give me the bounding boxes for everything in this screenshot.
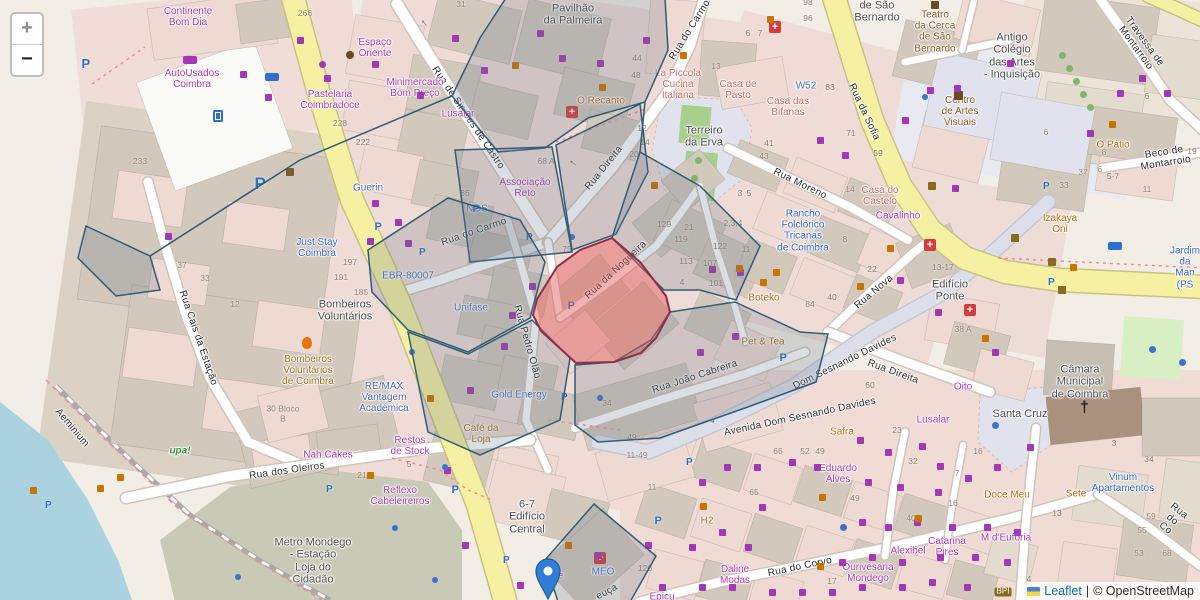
poi-label: H2 [701, 515, 714, 526]
shop-icon [897, 484, 904, 491]
poi-label: Continente Bom Dia [164, 6, 212, 28]
shop-icon [899, 559, 906, 566]
fountain-icon [1149, 346, 1156, 353]
parking-icon: P [526, 232, 533, 243]
parking-icon: P [686, 457, 693, 468]
wheelchair-icon [319, 61, 326, 68]
poi-label: Epicu [649, 591, 674, 600]
place-label: Antigo Colégio das Artes - Inquisição [984, 31, 1040, 80]
shop-icon [859, 584, 866, 591]
house-number: 119 [674, 235, 688, 245]
shop-icon [372, 200, 379, 207]
street-label: Rua do Carmo [667, 0, 713, 62]
house-number: 65 [749, 488, 758, 498]
street-label: Rua do Co [1151, 498, 1194, 542]
house-number: 31 [456, 0, 465, 10]
info-icon [597, 395, 603, 401]
poi-label: Catarina Pires [928, 536, 966, 558]
bank-icon [1011, 234, 1019, 242]
street-label: euça [594, 582, 619, 600]
poi-label: Sete [1066, 488, 1087, 499]
car-dealer-icon [183, 56, 197, 64]
parking-icon: P [473, 203, 480, 215]
shop-icon [697, 349, 704, 356]
tree-icon [1087, 104, 1094, 111]
shop-icon [417, 92, 424, 99]
house-number: 33 [200, 274, 209, 284]
house-number: 129 [657, 220, 671, 230]
parking-icon: P [45, 500, 52, 511]
house-number: 16 [948, 499, 957, 509]
house-number: 37 [177, 261, 186, 271]
street-label: Rua João Cabreira [651, 358, 739, 396]
poi-label: W52 [796, 80, 817, 91]
fuel-station-icon [213, 110, 223, 122]
food-drink-icon [857, 283, 864, 290]
house-number: 13 [711, 62, 720, 72]
shop-icon [1007, 60, 1014, 67]
shop-icon [265, 94, 272, 101]
house-number: 191 [334, 273, 348, 283]
poi-label: Lusalar [442, 108, 475, 119]
shop-icon [597, 60, 604, 67]
shop-icon [467, 387, 474, 394]
shop-icon [927, 87, 934, 94]
street-label: Rua dos Oleiros [248, 460, 325, 482]
food-drink-icon [599, 84, 606, 91]
shop-icon [1027, 444, 1034, 451]
shop-icon [994, 464, 1001, 471]
artwork-icon [346, 51, 354, 59]
house-number: 48 [631, 71, 640, 81]
shop-icon [595, 552, 602, 559]
food-drink-icon [565, 542, 572, 549]
food-drink-icon [887, 245, 894, 252]
scales-icon [286, 168, 294, 176]
zoom-out-button[interactable]: − [12, 45, 42, 75]
house-number: 38 A [954, 325, 971, 335]
tree-icon [1066, 65, 1073, 72]
house-number: 75 [562, 245, 571, 255]
street-label: Travessa de Montarroio [1113, 14, 1166, 76]
parking-icon: P [82, 56, 91, 71]
poi-label: EBR-80007 [382, 270, 434, 281]
house-number: 222 [356, 138, 370, 148]
poi-label: Lusalar [917, 414, 950, 425]
food-drink-icon [700, 503, 707, 510]
shop-icon [759, 504, 766, 511]
shop-icon [1117, 90, 1124, 97]
shop-icon [929, 579, 936, 586]
fountain-icon [992, 422, 999, 429]
shop-icon [501, 343, 508, 350]
house-number: 34 [1144, 455, 1153, 465]
street-label: Rua da Sofia [846, 82, 882, 142]
info-icon [392, 525, 398, 531]
shop-icon [869, 554, 876, 561]
street-label: Rua da Nogueira [583, 239, 649, 302]
house-number: 86 [460, 189, 469, 199]
food-drink-icon [117, 474, 124, 481]
place-label: Terreiro da Erva [685, 125, 723, 150]
shop-icon [769, 589, 776, 596]
museum-icon [954, 91, 963, 100]
shop-icon [859, 519, 866, 526]
house-number: 12 [637, 124, 646, 134]
food-drink-icon [736, 265, 743, 272]
house-number: 13 [1052, 509, 1061, 519]
house-number: 13-17 [932, 263, 954, 273]
house-number: 44 [632, 54, 641, 64]
shop-icon [240, 71, 247, 78]
poi-label: Just Stay Coimbra [296, 237, 337, 259]
shop-icon [645, 542, 652, 549]
shop-icon [1164, 90, 1171, 97]
shop-icon [935, 309, 942, 316]
info-icon [569, 234, 575, 240]
place-label: de São Bernardo [854, 0, 899, 24]
house-number: 126 [638, 564, 652, 574]
osm-attribution-text: © OpenStreetMap [1093, 584, 1194, 598]
house-number: 96 [803, 14, 812, 24]
shop-icon [817, 137, 824, 144]
poi-label: La Piccola Cucina Italiana [655, 68, 701, 102]
food-drink-icon [767, 16, 774, 23]
shop-icon [462, 542, 469, 549]
shop-icon [724, 464, 731, 471]
leaflet-link[interactable]: Leaflet [1044, 584, 1082, 598]
house-number: 53 [1134, 549, 1143, 559]
shop-icon [659, 584, 666, 591]
shop-icon [949, 524, 956, 531]
fountain-icon [1179, 359, 1186, 366]
house-number: 2,3,4 [724, 219, 743, 229]
poi-label: Pastelaria Coimbradoce [300, 89, 359, 111]
house-number: 197 [343, 258, 357, 268]
shop-icon [481, 67, 488, 74]
church-cross-icon: † [1080, 399, 1089, 417]
house-number: 59 [873, 149, 882, 159]
place-label: Câmara Municipal de Coimbra [1052, 364, 1109, 401]
atm-icon [928, 182, 936, 190]
house-number: 12 [230, 300, 239, 310]
shop-icon [444, 467, 451, 474]
shop-icon [857, 437, 864, 444]
shop-icon [1014, 529, 1021, 536]
attribution-separator: | [1086, 584, 1089, 598]
house-number: 3 [1112, 439, 1117, 449]
poi-label: Ourivesaria Mondego [842, 562, 893, 584]
poi-label: Alexibel [890, 545, 925, 556]
poi-label: BPI [995, 588, 1012, 597]
shop-icon [709, 266, 716, 273]
shop-icon [992, 349, 999, 356]
info-icon [922, 94, 928, 100]
street-label: Aeminium [53, 406, 92, 449]
shop-icon [372, 61, 379, 68]
street-label: Rua de Simões de Castro [429, 65, 506, 172]
map-canvas[interactable]: Rua de Simões de CastroRua DireitaRua do… [0, 0, 1200, 600]
poi-label: O Recanto [577, 95, 625, 106]
food-drink-icon [30, 487, 37, 494]
poi-label: M d'Euforia [981, 532, 1031, 543]
poi-label: Café da Loja [463, 423, 498, 445]
house-number: 34 [602, 399, 611, 409]
bank-icon [1048, 258, 1056, 266]
shop-icon [952, 185, 959, 192]
house-number: 7 [955, 469, 960, 479]
shop-icon [699, 479, 706, 486]
house-number: 8 [843, 235, 848, 245]
place-label: Metro Mondego - Estação Loja do Cidadão [274, 536, 351, 585]
house-number: 11-49 [626, 451, 647, 461]
poi-label: NOS [466, 203, 488, 214]
food-drink-icon [651, 182, 658, 189]
poi-label: O Pátio [1096, 139, 1129, 150]
oneway-arrow-icon: → [415, 16, 431, 32]
poi-label: Izakaya Oni [1043, 213, 1077, 235]
attribution-bar: Leaflet | © OpenStreetMap [1021, 582, 1200, 600]
parking-icon: P [561, 392, 568, 403]
parking-icon: P [419, 247, 426, 258]
shop-icon [729, 584, 736, 591]
house-number: 55 [1137, 526, 1146, 536]
poi-label: Oito [954, 381, 972, 392]
house-number: 68 [1162, 549, 1171, 559]
shop-icon [814, 464, 821, 471]
oneway-arrow-icon: → [705, 413, 718, 427]
shop-icon [789, 459, 796, 466]
house-number: 40 [906, 514, 915, 524]
zoom-in-button[interactable]: + [12, 14, 42, 45]
oneway-arrow-icon: → [565, 156, 581, 172]
house-number: 266 [298, 9, 312, 19]
house-number: 22 [867, 265, 876, 275]
food-drink-icon [760, 279, 767, 286]
parking-icon: P [255, 174, 266, 194]
house-number: 59 [1146, 512, 1155, 522]
pharmacy-icon: + [769, 21, 781, 33]
food-drink-icon [367, 472, 374, 479]
house-number: 5·7 [1107, 172, 1119, 182]
shop-icon [935, 489, 942, 496]
house-number: 33 [1059, 181, 1068, 191]
house-number: 60 [865, 381, 874, 391]
tree-icon [1073, 78, 1080, 85]
taxi-icon [1108, 242, 1122, 250]
shop-icon [643, 37, 650, 44]
food-drink-icon [982, 335, 989, 342]
house-number: 5 [747, 189, 752, 199]
poi-label: Reflexo Cabeleireiros [371, 485, 430, 507]
house-number: 66 [773, 447, 782, 457]
shop-icon [452, 35, 459, 42]
shop-icon [559, 55, 566, 62]
parking-icon: P [326, 484, 333, 495]
tree-icon [1080, 91, 1087, 98]
house-number: 49 [815, 447, 824, 457]
shop-icon [732, 333, 739, 340]
pharmacy-icon: + [566, 106, 578, 118]
food-drink-icon [817, 563, 824, 570]
shop-icon [829, 589, 836, 596]
shop-icon [689, 544, 696, 551]
house-number: 3 [738, 189, 743, 199]
shop-icon [865, 479, 872, 486]
street-label: Rua Nova [852, 273, 895, 312]
poi-label: Guerin [353, 182, 383, 193]
house-number: 6 [1044, 128, 1049, 138]
food-drink-icon [97, 485, 104, 492]
poi-label: Daline Modas [720, 564, 750, 586]
poi-label: MEO [592, 566, 615, 577]
house-number: 11 [648, 483, 657, 493]
house-number: 8 [1102, 148, 1107, 158]
parking-icon: P [452, 484, 459, 496]
house-number: 101 [709, 279, 723, 289]
poi-label: Boteko [748, 292, 779, 303]
poi-label: Pet & Tea [741, 336, 784, 347]
shop-icon [529, 283, 536, 290]
street-label: Rua Direita [866, 358, 920, 387]
poi-label: Centro de Artes Visuais [942, 95, 979, 129]
house-number: 185 [354, 288, 368, 298]
pharmacy-icon: + [924, 239, 936, 251]
poi-label: Restos de Stock [391, 435, 430, 457]
shop-icon [1004, 559, 1011, 566]
place-label: Edifício Ponte [932, 279, 968, 304]
place-label: Bombeiros Voluntários [318, 299, 372, 324]
shop-icon [937, 554, 944, 561]
food-drink-icon [1070, 264, 1077, 271]
parking-icon: P [375, 221, 382, 233]
poi-label: ore [549, 570, 563, 581]
shop-icon [885, 524, 892, 531]
place-label: 6-7 Edifício Central [509, 499, 545, 536]
house-number: 11 [742, 245, 751, 255]
info-icon [442, 464, 448, 470]
house-number: 40 [827, 293, 836, 303]
house-number: 5 [407, 460, 412, 470]
food-drink-icon [1109, 121, 1116, 128]
food-drink-icon [680, 52, 687, 59]
parking-icon: P [503, 555, 510, 566]
poi-label: Unifase [454, 302, 488, 313]
shop-icon [937, 463, 944, 470]
shop-icon [699, 584, 706, 591]
factory-icon [324, 75, 331, 82]
house-number: 83 [825, 83, 834, 93]
street-label: Avenida Dom Sesnando Davides [723, 395, 877, 438]
poi-label: Associação Reto [499, 177, 550, 199]
house-number: 7 [758, 29, 763, 39]
house-number: 49 [627, 433, 636, 443]
house-number: 113 [679, 257, 693, 267]
house-number: 43 [759, 152, 768, 162]
house-number: 4 [680, 278, 685, 288]
info-icon [409, 349, 415, 355]
street-label: Rua Cais da Estação [176, 289, 219, 387]
shop-icon [972, 554, 979, 561]
info-icon [235, 574, 241, 580]
shop-icon [405, 240, 412, 247]
house-number: 84 [805, 300, 814, 310]
house-number: 19 [1187, 147, 1196, 157]
food-drink-icon [915, 515, 922, 522]
poi-label: Bombeiros Voluntários de Coimbra [282, 354, 334, 388]
food-drink-icon [427, 395, 434, 402]
tree-icon [691, 175, 698, 182]
street-label: Rua do Carmo [440, 216, 509, 249]
house-number: 41 [764, 139, 773, 149]
house-number: 6 [1145, 92, 1150, 102]
poi-label: Teatro da Cerca de São Bernardo [914, 10, 955, 55]
zoom-control: + − [10, 12, 44, 77]
poi-label: Doce Meu [984, 489, 1030, 500]
house-number: 21 [684, 223, 693, 233]
parking-icon: P [655, 515, 662, 527]
shop-icon [395, 219, 402, 226]
food-drink-icon [819, 494, 826, 501]
shop-icon [537, 30, 544, 37]
shop-icon [367, 238, 374, 245]
house-number: 228 [333, 119, 347, 129]
parking-icon: P [780, 352, 787, 364]
house-number: 20 [629, 150, 638, 160]
shop-icon [1139, 75, 1146, 82]
street-label: Dom Sesnando Davides [791, 332, 898, 392]
shop-icon [885, 449, 892, 456]
house-number: 98 [803, 0, 812, 8]
place-label: Pavilhão da Palmeira [544, 3, 603, 28]
house-number: 14 [845, 185, 854, 195]
poi-label: Rancho Folclórico Tricanas de Coimbra [777, 209, 829, 254]
shop-icon [964, 584, 971, 591]
map-labels-layer: Rua de Simões de CastroRua DireitaRua do… [0, 0, 1200, 600]
bus-stop-icon [265, 73, 279, 81]
shop-icon [754, 464, 761, 471]
house-number: 6 [1098, 165, 1103, 175]
tree-icon [1059, 52, 1066, 59]
house-number: 68 A [537, 157, 554, 167]
house-number: 6 [746, 29, 751, 39]
shop-icon [899, 584, 906, 591]
ukraine-flag-icon [1027, 587, 1040, 596]
house-number: 52 [800, 447, 809, 457]
shop-icon [842, 152, 849, 159]
food-drink-icon [773, 269, 780, 276]
poi-label: Casa do Castelo [861, 185, 898, 207]
street-label: Rua do Corvo [767, 555, 833, 580]
theatre-icon [931, 1, 939, 9]
poi-label: Cavalinho [876, 210, 920, 221]
shop-icon [745, 544, 752, 551]
fire-station-icon [302, 337, 312, 349]
shop-icon [737, 269, 744, 276]
shop-icon [897, 277, 904, 284]
shop-icon [297, 37, 304, 44]
place-label: Santa Cruz [992, 408, 1047, 420]
poi-label: Casa de Pasto [719, 79, 756, 101]
tree-icon [695, 157, 702, 164]
parking-icon: P [1043, 181, 1050, 192]
house-number: 23 [892, 426, 901, 436]
shop-icon [965, 475, 972, 482]
parking-icon: P [1048, 277, 1055, 288]
street-label: Rua Direita [583, 144, 625, 192]
shop-icon [799, 589, 806, 596]
house-number: 32 [908, 457, 917, 467]
